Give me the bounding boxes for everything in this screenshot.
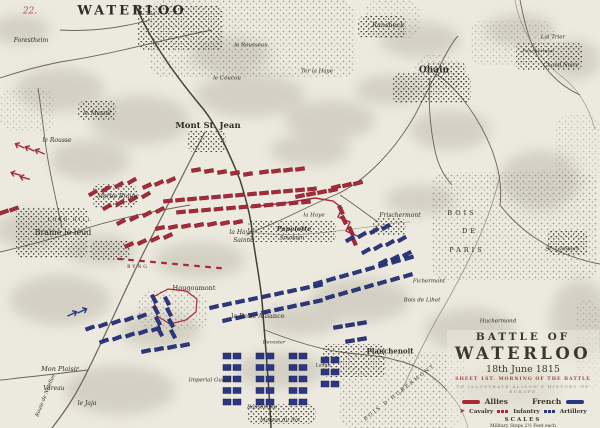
map-label: Ohain	[419, 67, 449, 76]
title-date: 18th June 1815	[447, 364, 599, 375]
map-label: la Haye	[303, 213, 324, 219]
map-label: Fichermont	[413, 279, 445, 285]
cavalry-symbol-icon: ➤	[459, 408, 465, 415]
map-label: Ransbeck	[372, 22, 404, 29]
french-unit-group	[345, 336, 366, 343]
map-label: Sainte	[233, 238, 252, 244]
series-subtitle: TO ILLUSTRATE ALISON'S HISTORY OF EUROPE	[447, 384, 599, 394]
map-label: Imperial Guard	[189, 378, 232, 384]
map-label: St. Lambert	[545, 247, 578, 253]
military-steps-label: Military Steps 2½ Feet each	[447, 424, 599, 428]
map-label: Bois de Lihet	[404, 298, 441, 304]
french-unit-group	[361, 235, 407, 255]
allied-unit-group	[14, 141, 46, 157]
map-label: Mont St. Jean	[175, 122, 240, 131]
title-line-battle-of: BATTLE OF	[447, 331, 599, 343]
allied-unit-group	[176, 200, 310, 215]
infantry-label: Infantry	[513, 409, 540, 415]
french-color-swatch	[566, 400, 584, 404]
map-label: Smohain	[280, 236, 304, 242]
cavalry-label: Cavalry	[469, 409, 493, 415]
artillery-symbol-icon	[544, 409, 556, 415]
map-label: le Rousse	[42, 138, 71, 144]
artillery-label: Artillery	[560, 409, 587, 415]
map-label: LORD HILL	[48, 219, 93, 224]
map-label: Merbe Braine	[97, 194, 139, 200]
map-label: la Belle Alliance	[231, 313, 284, 320]
map-label: WATERLOO	[77, 5, 186, 18]
map-label: Lasne	[315, 364, 330, 369]
map-label: la Haye	[229, 230, 252, 236]
map-label: Planchenoit	[366, 348, 413, 355]
map-label: BYNG	[127, 266, 149, 271]
title-block: BATTLE OF WATERLOO 18th June 1815 SHEET …	[447, 330, 599, 428]
allied-unit-group	[259, 167, 304, 175]
map-label: le Mesnil	[83, 111, 111, 117]
map-label: Huchermond	[480, 319, 516, 325]
allied-unit-group	[10, 170, 30, 182]
legend-armies-row: Allies French	[447, 397, 599, 406]
map-label: Ponchermon	[522, 50, 554, 55]
allied-unit-group	[163, 187, 316, 204]
infantry-symbol-icon	[497, 409, 509, 415]
map-label: Rossomme	[247, 405, 277, 411]
allies-color-swatch	[462, 400, 480, 404]
map-label: BOIS	[447, 210, 476, 217]
sheet-subtitle: SHEET 1ST. MORNING OF THE BATTLE	[447, 377, 599, 382]
waterloo-battle-map: 22.WATERLOOForestheimRansbeckle Rousseau…	[0, 0, 600, 428]
allied-unit-group	[191, 167, 252, 176]
allied-unit-group	[116, 206, 165, 225]
french-label: French	[532, 397, 561, 406]
map-label: Forestheim	[14, 38, 48, 44]
map-label: Decoster	[263, 341, 286, 346]
map-label: Frischermont	[379, 213, 420, 219]
allied-unit-group	[142, 176, 176, 189]
map-label: Ter la Haye	[301, 69, 333, 75]
map-label: Chand Noire	[543, 63, 579, 69]
map-label: le Jaja	[78, 401, 97, 407]
map-label: Maison du Roi	[260, 418, 300, 424]
legend-arms-row: ➤ Cavalry Infantry Artillery	[447, 408, 599, 415]
map-label: Hougoumont	[173, 285, 216, 292]
map-label: DE	[462, 228, 478, 235]
map-label: Braine le leud	[35, 229, 92, 237]
map-label: PARIS	[449, 247, 484, 254]
allies-label: Allies	[485, 397, 508, 406]
map-label: Papelotte	[277, 226, 312, 233]
map-label: Lal Trier	[541, 35, 565, 41]
map-label: le Coucou	[213, 76, 241, 82]
map-label: 22.	[23, 8, 37, 17]
title-line-waterloo: WATERLOO	[447, 344, 599, 363]
map-label: le Rousseau	[234, 43, 267, 49]
scales-heading: SCALES	[447, 417, 599, 423]
map-label: Mon Plaisir	[41, 366, 79, 373]
